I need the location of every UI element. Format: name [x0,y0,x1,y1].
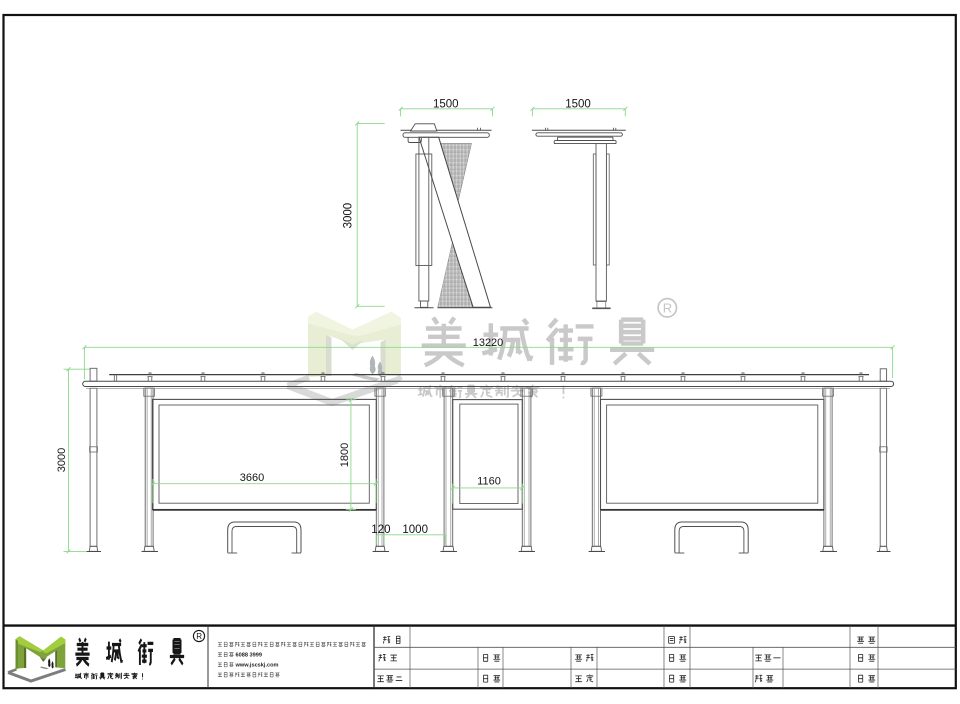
svg-text:1500: 1500 [433,99,459,111]
svg-text:3000: 3000 [343,203,355,229]
svg-text:1500: 1500 [565,99,591,111]
svg-text:3660: 3660 [240,472,264,484]
svg-text:1800: 1800 [339,443,351,467]
svg-text:R: R [196,632,202,641]
svg-text:3000: 3000 [56,448,68,472]
svg-text:120: 120 [371,524,390,536]
svg-text:R: R [663,301,672,316]
svg-text:1000: 1000 [402,524,428,536]
svg-text:13220: 13220 [473,337,504,349]
svg-text:6088 3999: 6088 3999 [236,653,262,659]
svg-text:1160: 1160 [477,476,501,488]
svg-text:www.jscskj.com: www.jscskj.com [235,663,279,669]
